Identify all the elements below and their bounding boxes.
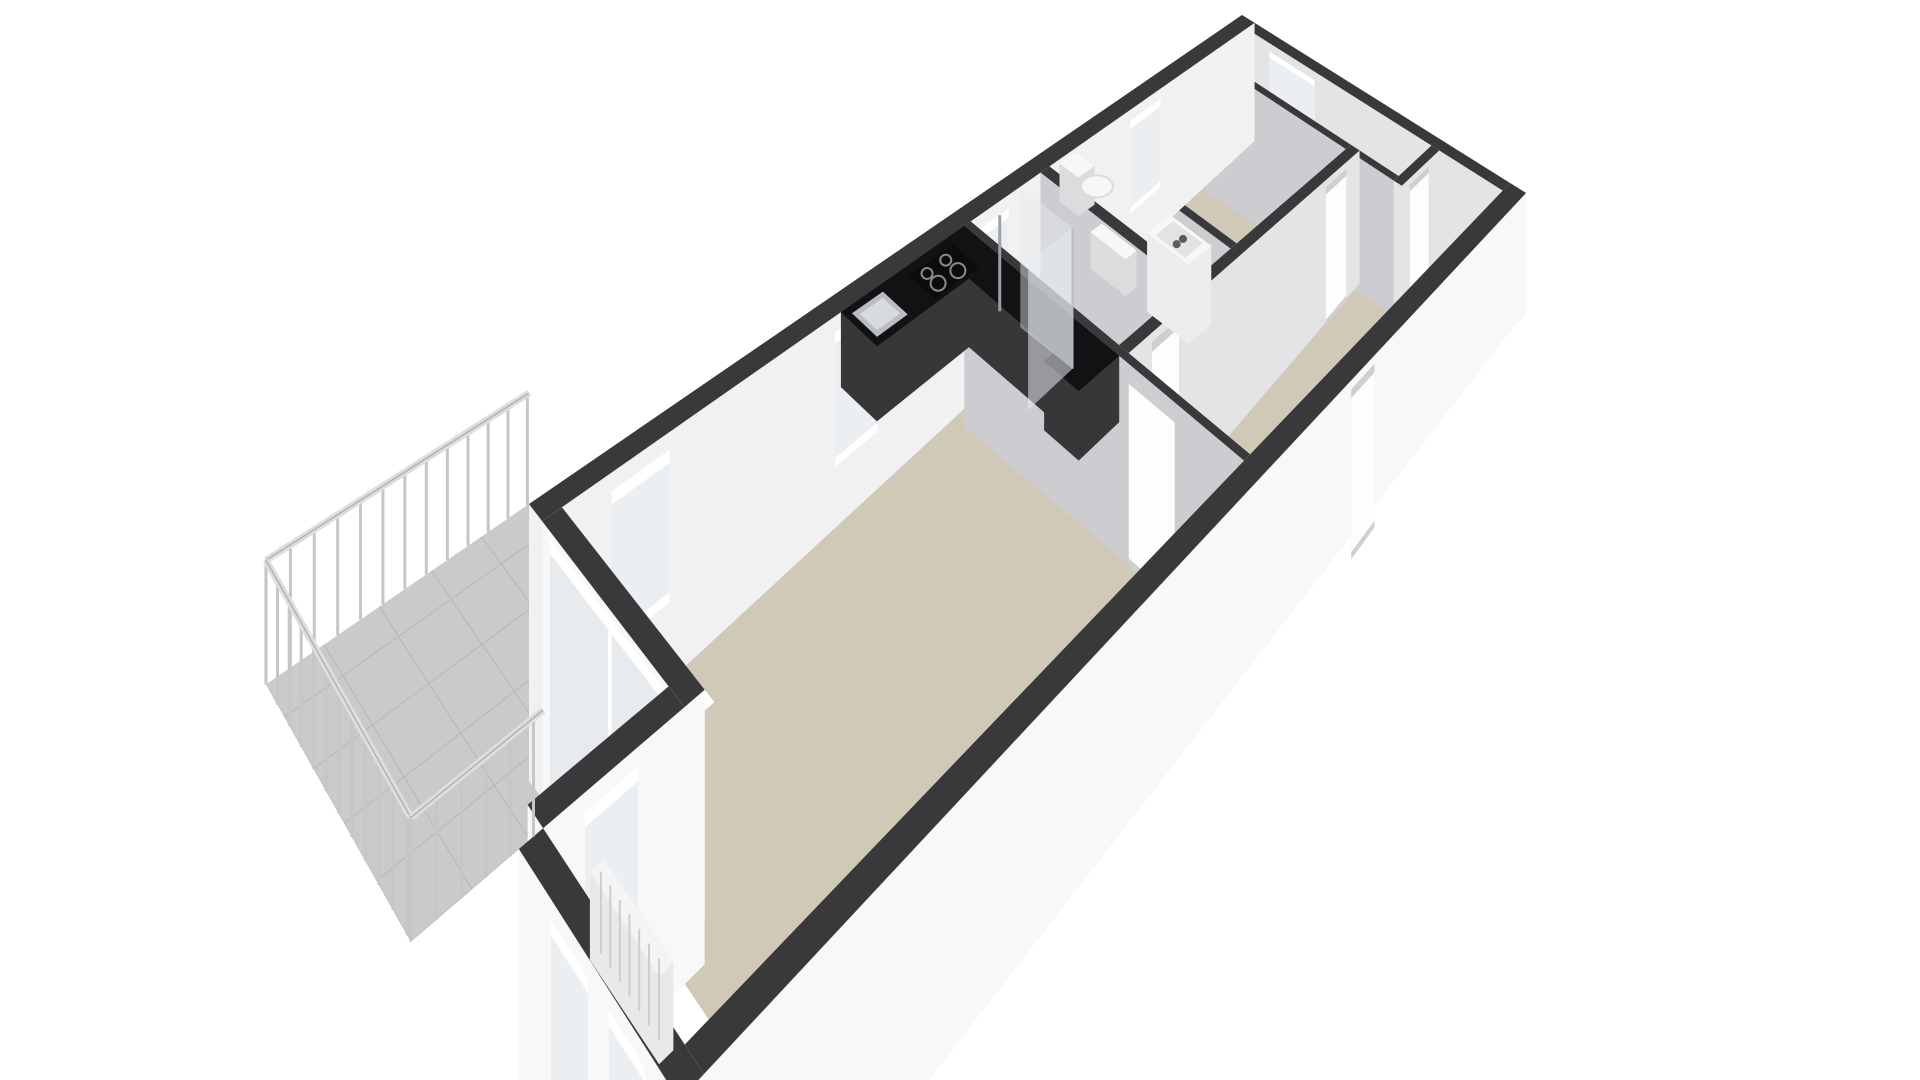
floorplan-canvas bbox=[0, 0, 1920, 1080]
interior-door bbox=[1326, 169, 1347, 326]
floorplan-3d bbox=[0, 0, 1920, 1080]
entrance-door bbox=[1351, 364, 1374, 559]
